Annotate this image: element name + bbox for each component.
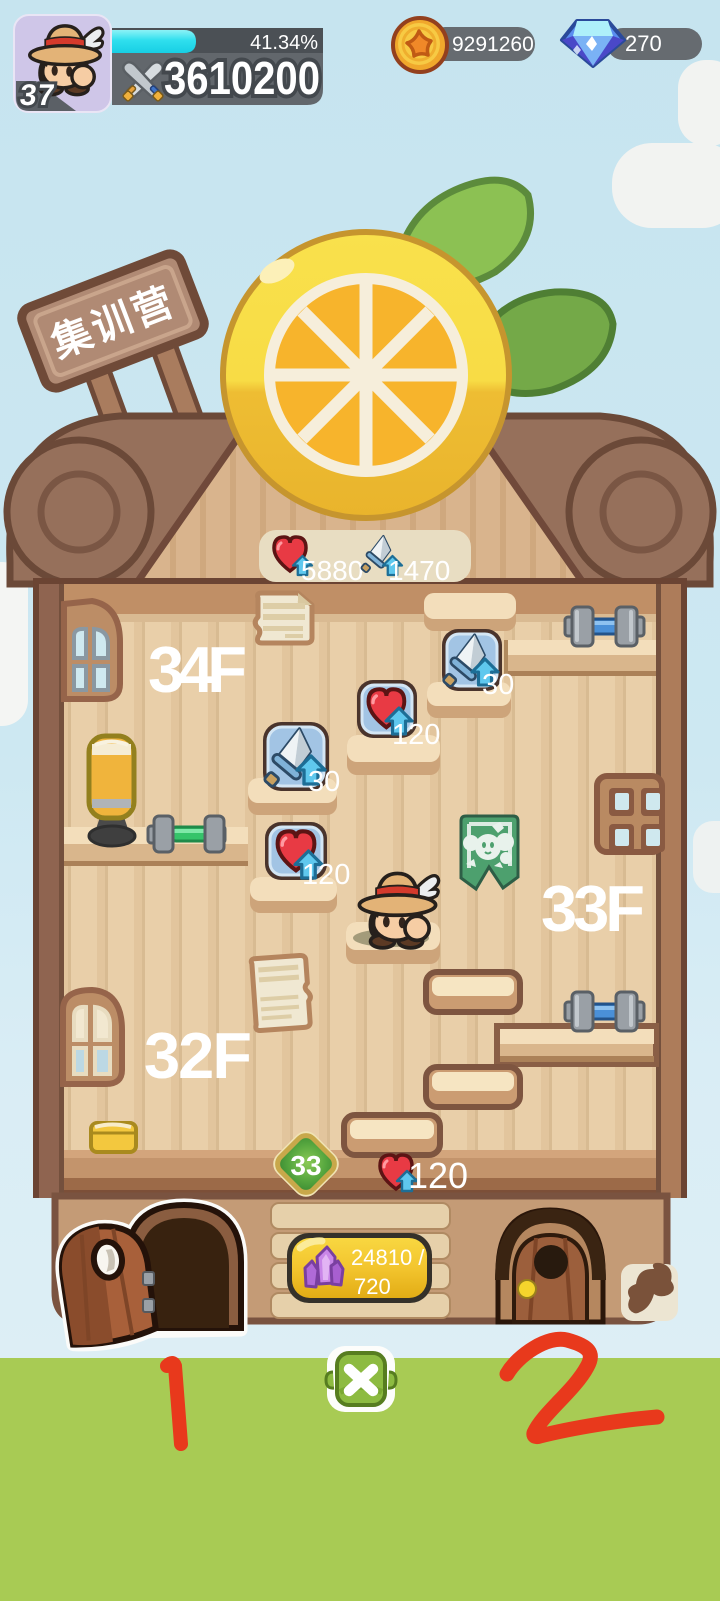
svg-text:24810 /: 24810 / [351,1245,425,1270]
svg-text:3610200: 3610200 [164,52,320,104]
svg-text:34F: 34F [148,633,247,706]
svg-text:120: 120 [302,859,350,891]
svg-text:720: 720 [354,1274,391,1299]
svg-text:1470: 1470 [388,555,450,586]
svg-text:5880: 5880 [301,555,363,586]
svg-text:9291260: 9291260 [452,33,534,56]
svg-text:33: 33 [290,1150,321,1181]
svg-text:270: 270 [625,31,662,56]
svg-text:30: 30 [308,766,340,798]
svg-text:33F: 33F [541,872,645,945]
svg-text:120: 120 [392,719,440,751]
svg-text:120: 120 [408,1155,468,1196]
svg-text:37: 37 [18,79,57,112]
svg-text:32F: 32F [144,1019,252,1092]
svg-text:41.34%: 41.34% [250,32,318,54]
svg-text:30: 30 [482,669,514,701]
